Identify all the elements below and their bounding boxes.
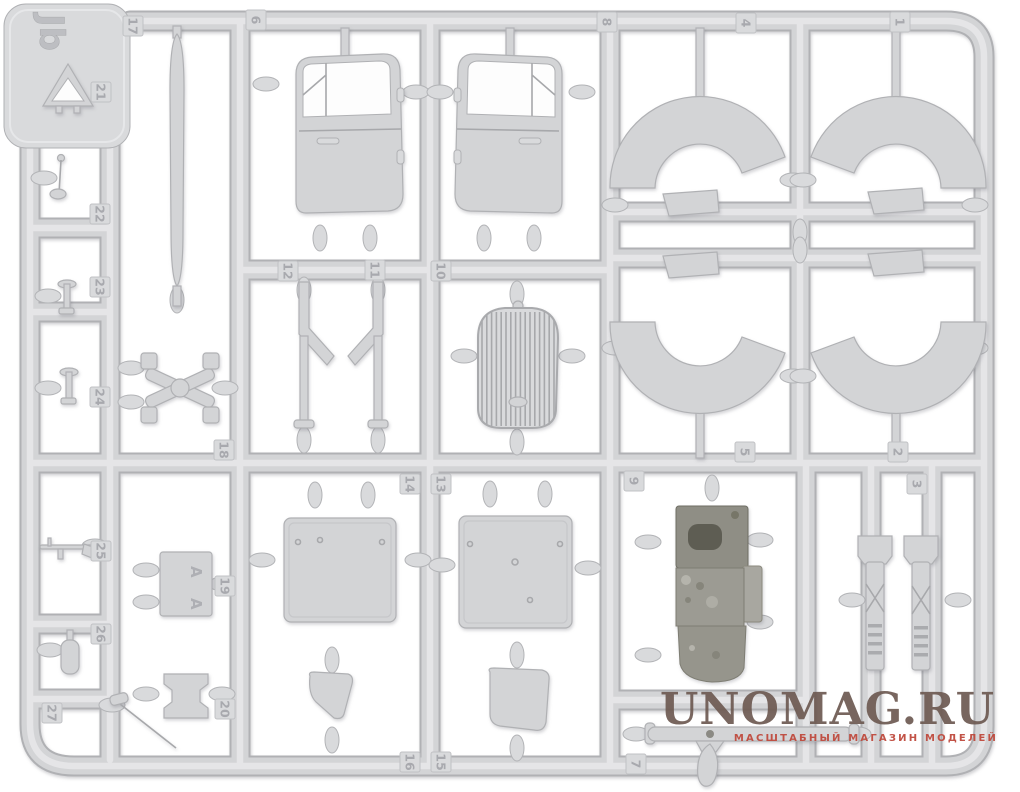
part-tag-21: 21 <box>91 82 111 102</box>
gate-connector <box>527 225 541 251</box>
svg-text:1: 1 <box>893 18 908 27</box>
svg-text:15: 15 <box>434 753 449 770</box>
part-8-cab-door-right <box>454 28 562 213</box>
part-tag-2: 2 <box>888 442 908 462</box>
gate-connector <box>361 482 375 508</box>
gate-connector <box>538 481 552 507</box>
gate-connector <box>747 533 773 547</box>
gate-connector <box>510 429 524 455</box>
gate-connector <box>559 349 585 363</box>
gate-connector <box>575 561 601 575</box>
gate-connector <box>118 395 144 409</box>
svg-text:23: 23 <box>93 278 108 295</box>
part-tag-14: 14 <box>400 474 420 494</box>
part-2-fender <box>811 322 986 458</box>
part-tag-20: 20 <box>215 699 235 719</box>
svg-text:14: 14 <box>403 475 418 493</box>
svg-text:9: 9 <box>627 477 642 486</box>
svg-text:13: 13 <box>434 475 449 492</box>
part-tag-11: 11 <box>365 260 385 280</box>
gate-connector <box>510 735 524 761</box>
gate-connector <box>35 289 61 303</box>
part-tag-12: 12 <box>278 261 298 281</box>
gate-connector <box>371 427 385 453</box>
svg-text:26: 26 <box>94 625 109 643</box>
part-tag-17: 17 <box>123 16 143 36</box>
part-9-firewall <box>676 506 762 682</box>
gate-connector <box>569 85 595 99</box>
part-26-pump-cylinder <box>61 630 79 674</box>
part-tag-22: 22 <box>90 204 110 224</box>
gate-connector <box>313 225 327 251</box>
gate-connector <box>35 381 61 395</box>
molded-parts: A A <box>40 26 986 786</box>
svg-text:12: 12 <box>281 262 296 279</box>
sprue-photo: Jb <box>0 0 1020 792</box>
gate-connector <box>212 381 238 395</box>
gate-connector <box>945 593 971 607</box>
bracket-letter-top: A <box>187 566 205 578</box>
svg-text:2: 2 <box>891 448 906 457</box>
gate-connector <box>635 535 661 549</box>
gate-connector <box>37 643 63 657</box>
part-tag-15: 15 <box>431 752 451 772</box>
part-tag-13: 13 <box>431 474 451 494</box>
gate-connector <box>429 558 455 572</box>
svg-text:22: 22 <box>93 205 108 222</box>
svg-text:20: 20 <box>218 700 233 718</box>
part-tag-3: 3 <box>907 474 927 494</box>
gate-connector <box>705 475 719 501</box>
gate-connector <box>403 85 429 99</box>
gate-connector <box>793 237 807 263</box>
gate-connector <box>790 369 816 383</box>
gate-connector <box>839 593 865 607</box>
svg-text:18: 18 <box>217 441 232 458</box>
gate-connector <box>363 225 377 251</box>
part-16-small-panel <box>310 672 353 719</box>
gate-connector <box>249 553 275 567</box>
part-tag-27: 27 <box>42 703 62 723</box>
part-tag-24: 24 <box>90 387 110 407</box>
gate-connector <box>483 481 497 507</box>
part-tag-5: 5 <box>735 442 755 462</box>
part-17-long-blade <box>170 26 184 306</box>
watermark-subtitle: МАСШТАБНЫЙ МАГАЗИН МОДЕЛЕЙ <box>700 733 1020 744</box>
part-14-roof-panel <box>284 518 396 622</box>
svg-text:25: 25 <box>94 542 109 559</box>
part-tag-4: 4 <box>736 13 756 33</box>
gate-connector <box>133 687 159 701</box>
part-3-frame-rails <box>858 536 938 670</box>
gate-connector <box>962 198 988 212</box>
svg-text:19: 19 <box>218 577 233 594</box>
watermark-title: UNOMAG.RU <box>660 684 992 735</box>
part-5-fender <box>610 322 785 458</box>
sprue-letter-text: Jb <box>31 12 71 51</box>
svg-text:7: 7 <box>629 760 644 769</box>
part-tag-7: 7 <box>626 754 646 774</box>
part-20-spool <box>164 674 208 718</box>
gate-connector <box>635 648 661 662</box>
part-tag-23: 23 <box>90 277 110 297</box>
svg-text:6: 6 <box>249 16 264 25</box>
part-12-window-frame <box>294 282 334 428</box>
gate-connector <box>405 553 431 567</box>
svg-text:17: 17 <box>126 17 141 34</box>
gate-connector <box>451 349 477 363</box>
part-tag-18: 18 <box>214 440 234 460</box>
gate-connector <box>118 361 144 375</box>
gate-connector <box>477 225 491 251</box>
part-6-cab-door-left <box>296 28 404 213</box>
gate-connector <box>602 198 628 212</box>
svg-text:27: 27 <box>45 704 60 721</box>
part-13-floor-panel <box>459 516 572 628</box>
part-15-small-panel <box>489 668 549 730</box>
gate-connector <box>308 482 322 508</box>
sprue-drawing: Jb <box>0 0 1020 792</box>
svg-text:5: 5 <box>738 448 753 457</box>
part-tag-9: 9 <box>624 471 644 491</box>
part-18-cross-brace <box>141 353 219 423</box>
gate-connector <box>297 427 311 453</box>
svg-text:8: 8 <box>600 18 615 27</box>
gate-connector <box>133 563 159 577</box>
svg-text:3: 3 <box>910 480 925 489</box>
svg-text:16: 16 <box>403 753 418 771</box>
part-tag-19: 19 <box>215 576 235 596</box>
gate-connector <box>790 173 816 187</box>
svg-text:10: 10 <box>434 262 449 280</box>
svg-text:24: 24 <box>93 388 108 406</box>
part-1-fender <box>811 28 986 188</box>
part-10-radiator-grille <box>478 301 558 428</box>
part-tag-1: 1 <box>890 12 910 32</box>
part-tag-10: 10 <box>431 261 451 281</box>
part-tag-25: 25 <box>91 541 111 561</box>
gate-connector <box>31 171 57 185</box>
svg-text:4: 4 <box>739 19 754 28</box>
gate-connector <box>510 642 524 668</box>
part-11-window-frame <box>348 282 388 428</box>
svg-text:21: 21 <box>94 83 109 100</box>
part-19-bracket-plate: A A <box>160 552 212 616</box>
part-4-fender <box>610 28 785 188</box>
part-tag-6: 6 <box>246 10 266 30</box>
part-tag-16: 16 <box>400 752 420 772</box>
svg-text:11: 11 <box>368 261 383 278</box>
gate-connector <box>133 595 159 609</box>
part-tag-26: 26 <box>91 624 111 644</box>
part-tag-8: 8 <box>597 12 617 32</box>
gate-connector <box>253 77 279 91</box>
gate-connector <box>325 727 339 753</box>
bracket-letter-bottom: A <box>187 598 205 610</box>
part-24-small-column <box>60 368 78 404</box>
gate-connector <box>427 85 453 99</box>
gate-connector <box>325 647 339 673</box>
